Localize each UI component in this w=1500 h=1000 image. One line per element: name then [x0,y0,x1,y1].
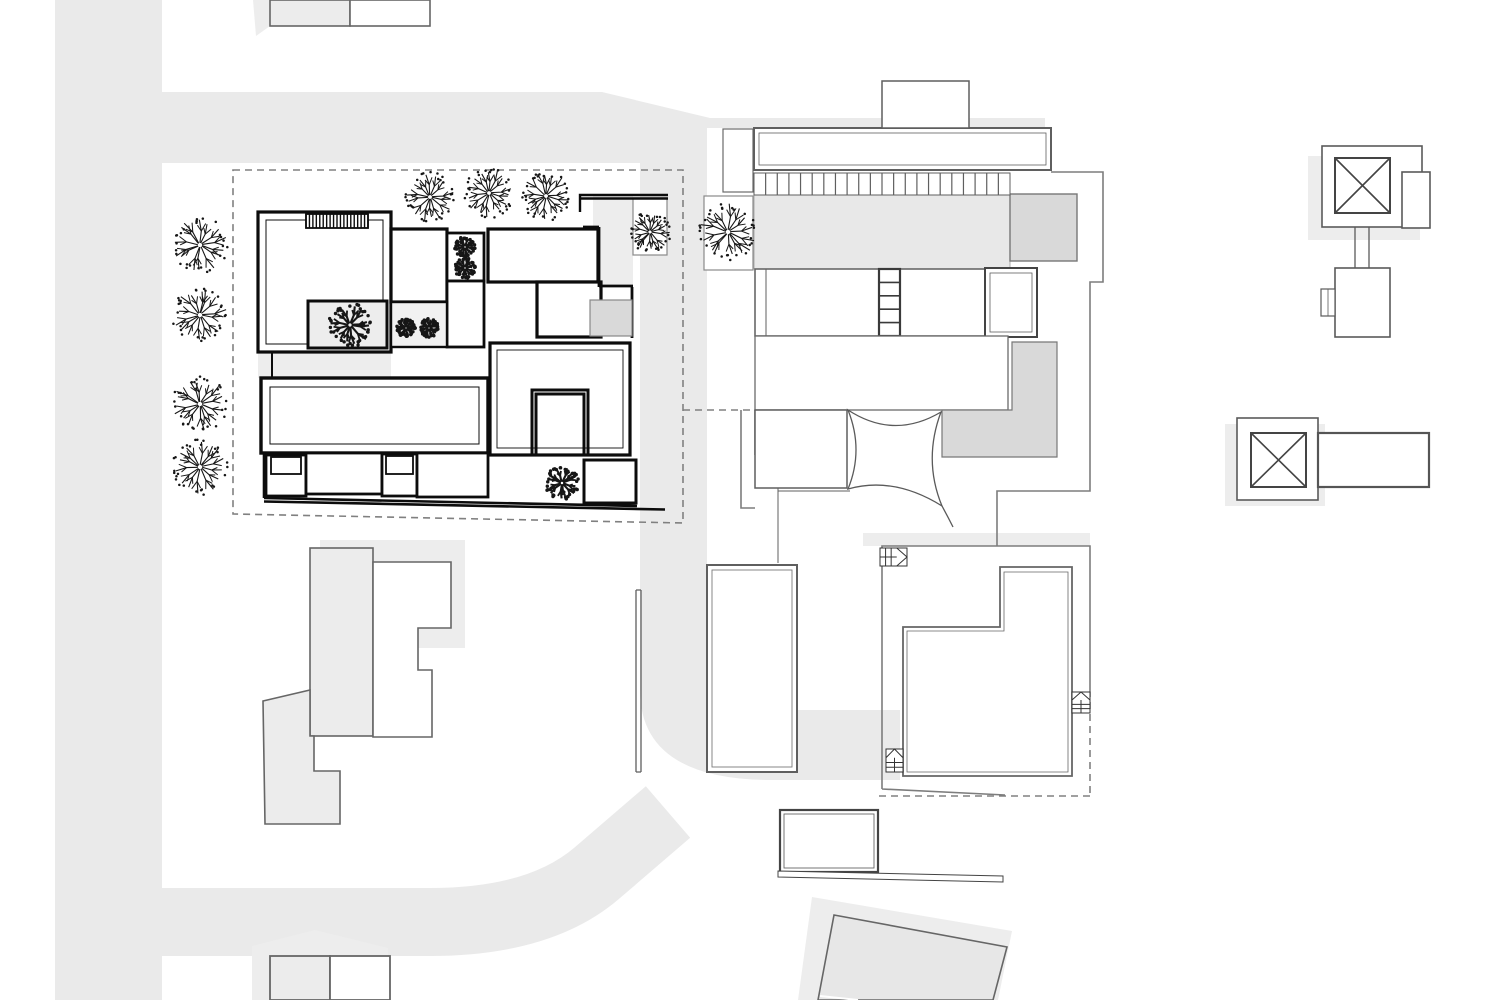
tree-icon [172,288,227,343]
garage-annex [780,810,878,872]
tree-icon [175,217,229,273]
stair-ladder [879,269,900,336]
site-plan-canvas [0,0,1500,1000]
tree-icon [521,173,569,221]
north-volume [882,81,969,128]
southwest-building-west-wing [310,548,373,736]
roof-hatch-strip [306,214,368,228]
east-room [985,268,1037,337]
south-rooms [755,410,847,488]
courtyard-house-roof [903,567,1072,776]
courtyard-house-southeast [880,546,1090,795]
corner-building-west-half [270,956,330,1000]
house-southeast [490,343,630,455]
shadow-house-gap [258,352,391,378]
east-buildings [1237,146,1430,500]
tree-icon [404,171,454,223]
stair-symbol [886,749,903,772]
rooms-band [755,269,985,336]
house-northeast [488,229,598,282]
south-rooms-row [264,453,665,510]
top-edge-building-west-half [270,0,350,26]
pool-court [707,565,797,772]
sail-shade-canopy [848,410,942,506]
row-room-4 [417,453,488,497]
east-north-lower [1335,268,1390,337]
corner-building-east-half [330,956,390,1000]
house-south-long [261,378,488,453]
stair-symbol [880,548,907,566]
east-south-wing [1318,433,1429,487]
house-mid-north [391,229,447,302]
east-building-south [1237,418,1429,500]
row-room-3 [382,454,417,496]
east-building-north [1321,146,1430,337]
ramp-wedge [778,871,1003,882]
terrace-deck [754,195,1010,269]
tree-dark-icon [545,466,579,501]
southwest-building-east-wing [373,562,451,737]
shadow-top-building [253,0,270,36]
east-north-annex [1402,172,1430,228]
tree-icon [173,375,227,430]
house-mid-room [447,281,484,347]
tree-icon [173,438,229,495]
middle-band [755,336,1008,410]
road-west [55,0,162,1000]
row-room-1 [266,455,306,496]
tree-icon [464,168,511,218]
roof-slab [754,128,1051,170]
sail-shade-tail [942,506,953,527]
site-plan-page [0,0,1500,1000]
stair-symbol [1072,692,1090,713]
terrace-panel-east [1010,194,1077,261]
plot-line-west [741,410,755,508]
row-room-2 [306,453,382,494]
road-south [162,812,668,922]
road-edge-strip [863,533,1090,546]
pergola-louvres [754,173,1010,195]
west-annex [723,129,753,192]
south-step-lines [778,488,850,563]
top-edge-building-east-half [350,0,430,26]
garden-panel [590,300,632,336]
row-room-5 [584,460,636,503]
